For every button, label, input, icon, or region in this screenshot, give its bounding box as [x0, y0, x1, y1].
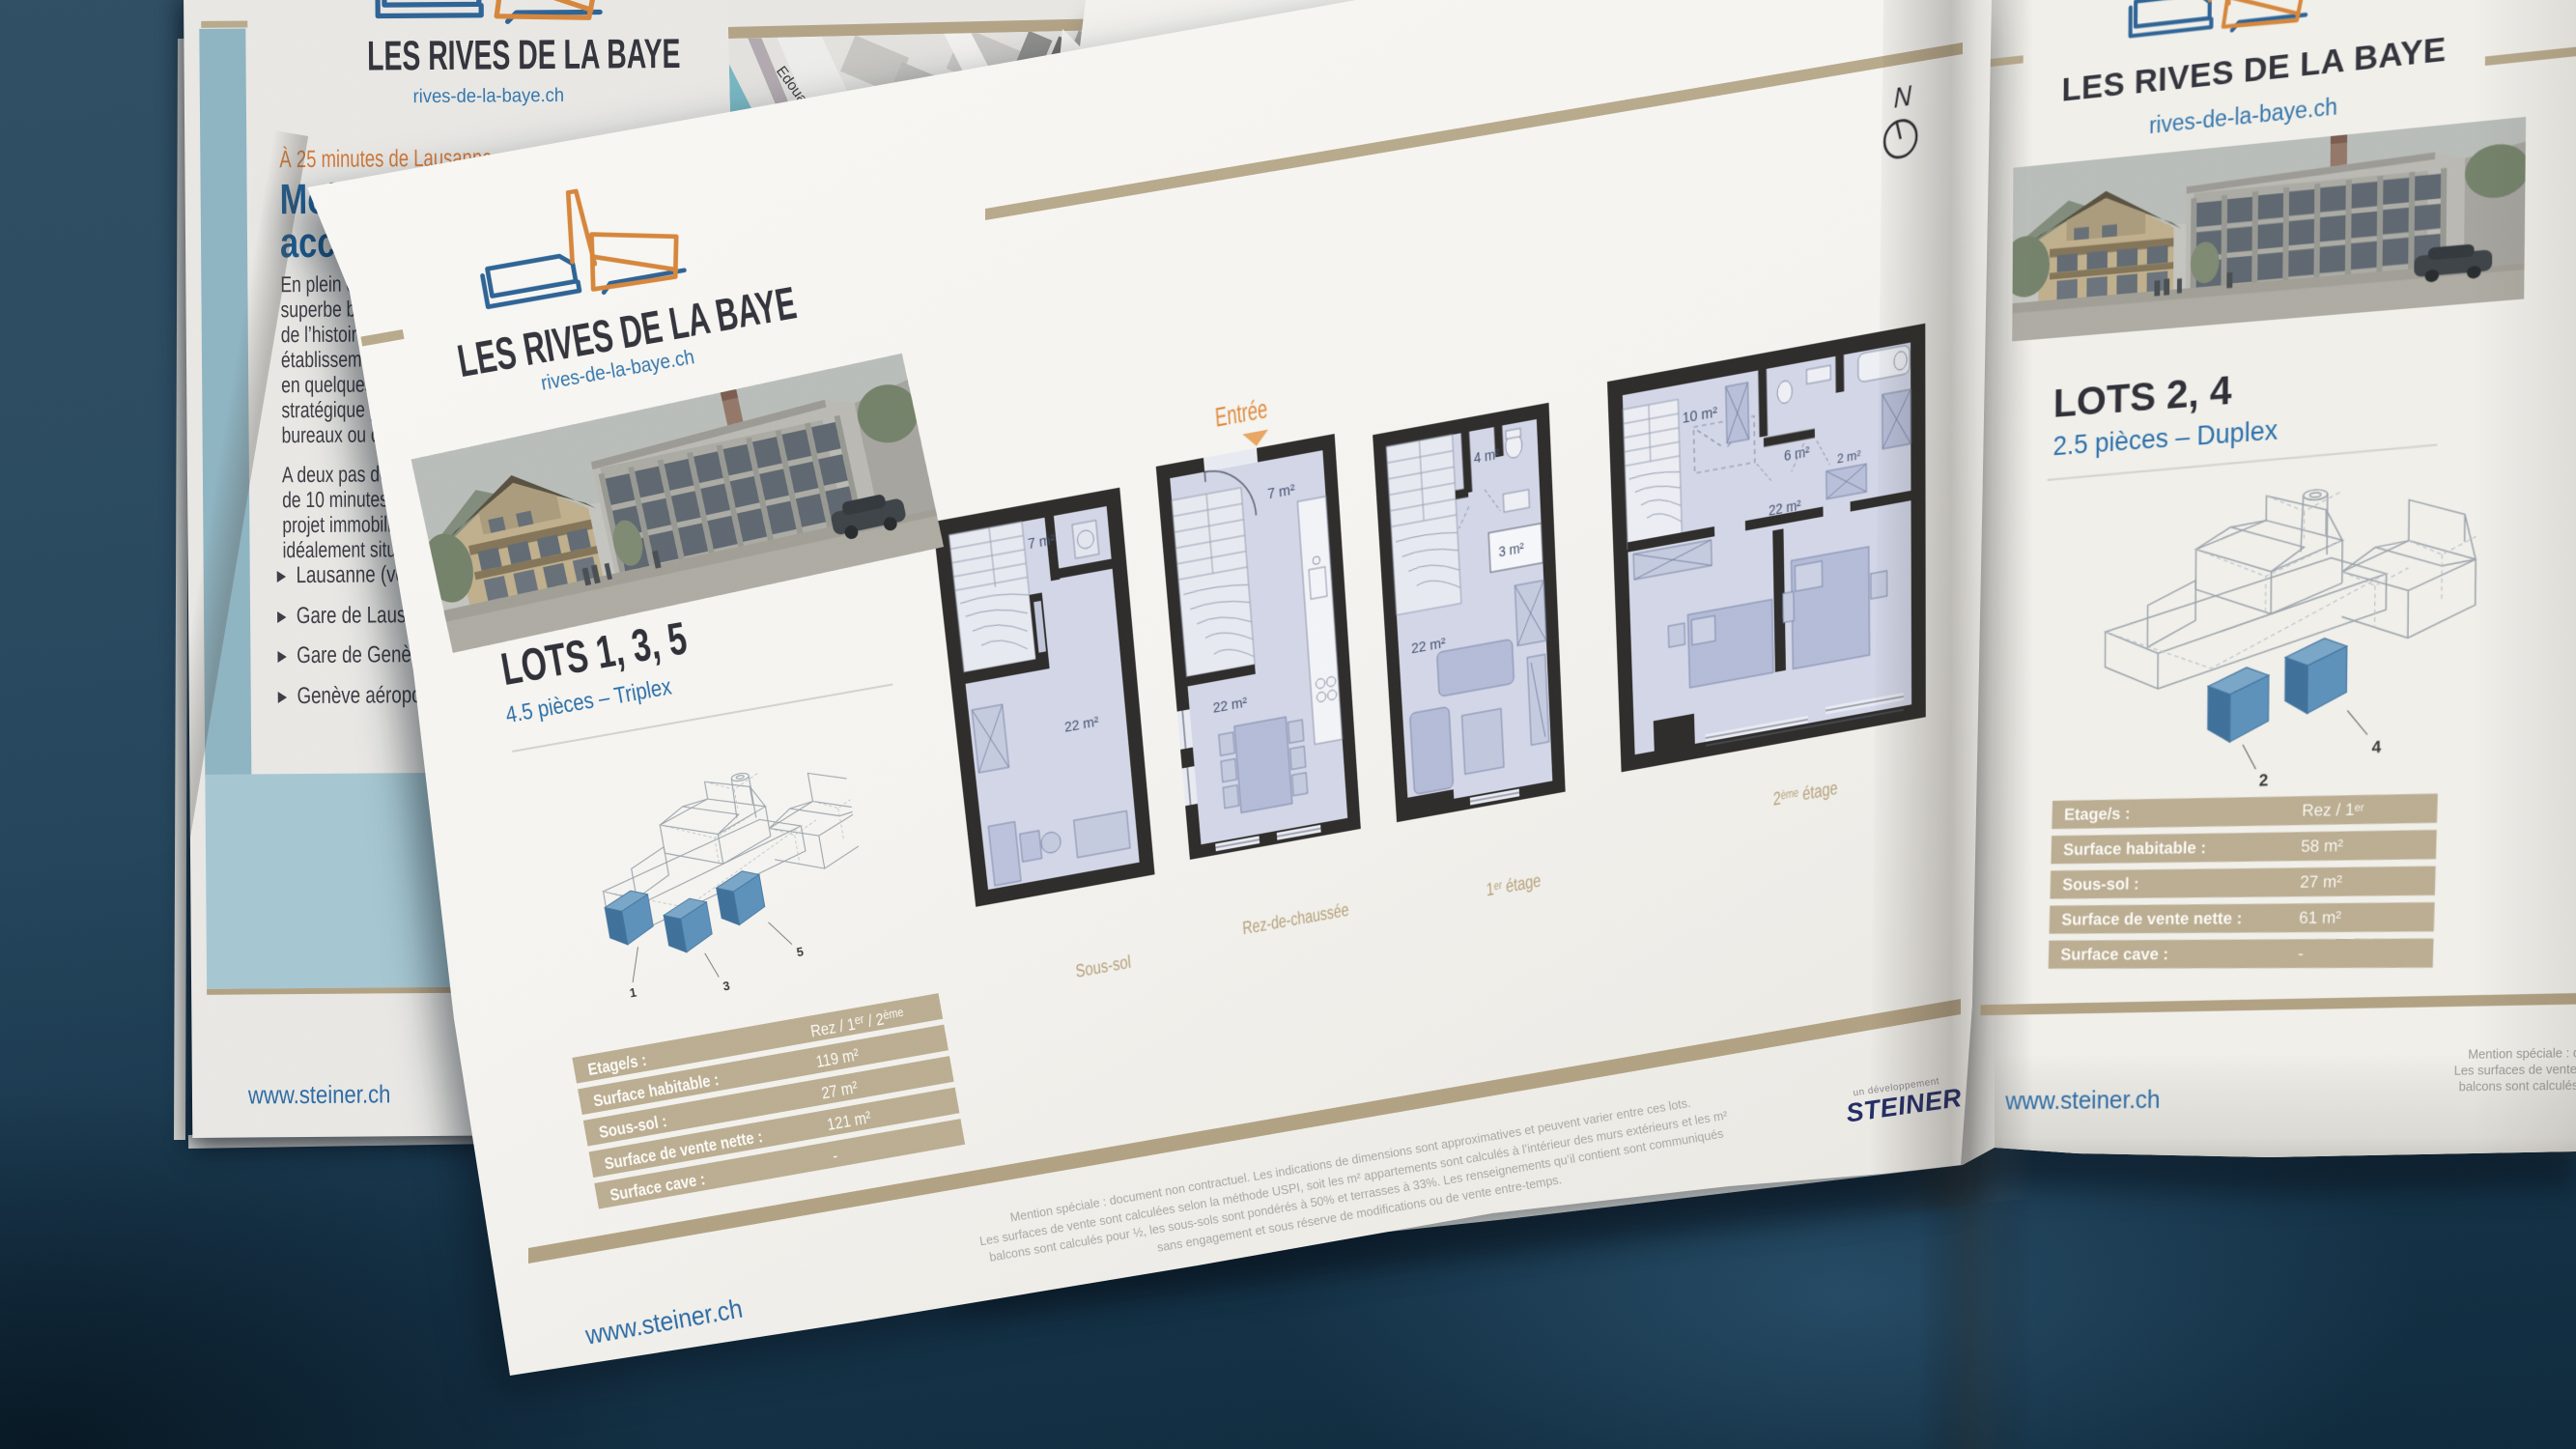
svg-text:5: 5 — [796, 945, 805, 959]
svg-text:3: 3 — [722, 980, 730, 994]
svg-text:1: 1 — [629, 986, 637, 1001]
svg-text:N: N — [1894, 78, 1912, 113]
